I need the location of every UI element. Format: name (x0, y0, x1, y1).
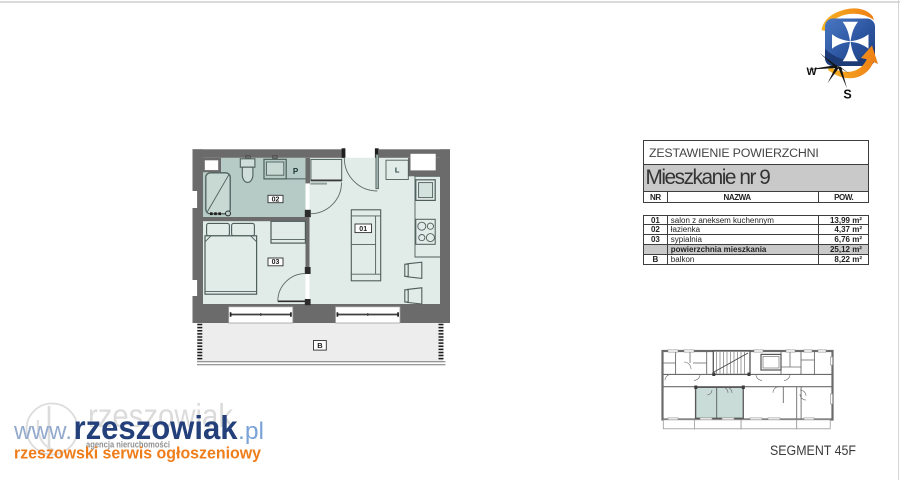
svg-text:02: 02 (272, 196, 280, 203)
svg-text:P: P (293, 167, 299, 176)
svg-text:S: S (843, 88, 851, 102)
svg-text:B: B (317, 341, 323, 350)
svg-text:W: W (806, 66, 817, 78)
svg-text:01: 01 (359, 226, 367, 233)
svg-text:L: L (395, 166, 400, 175)
svg-text:SEGMENT 45F: SEGMENT 45F (770, 443, 856, 458)
svg-text:www.: www. (13, 418, 72, 445)
svg-text:03: 03 (272, 259, 280, 266)
svg-text:rzeszowski serwis ogłoszeniowy: rzeszowski serwis ogłoszeniowy (14, 444, 262, 463)
svg-text:.pl: .pl (238, 418, 264, 445)
